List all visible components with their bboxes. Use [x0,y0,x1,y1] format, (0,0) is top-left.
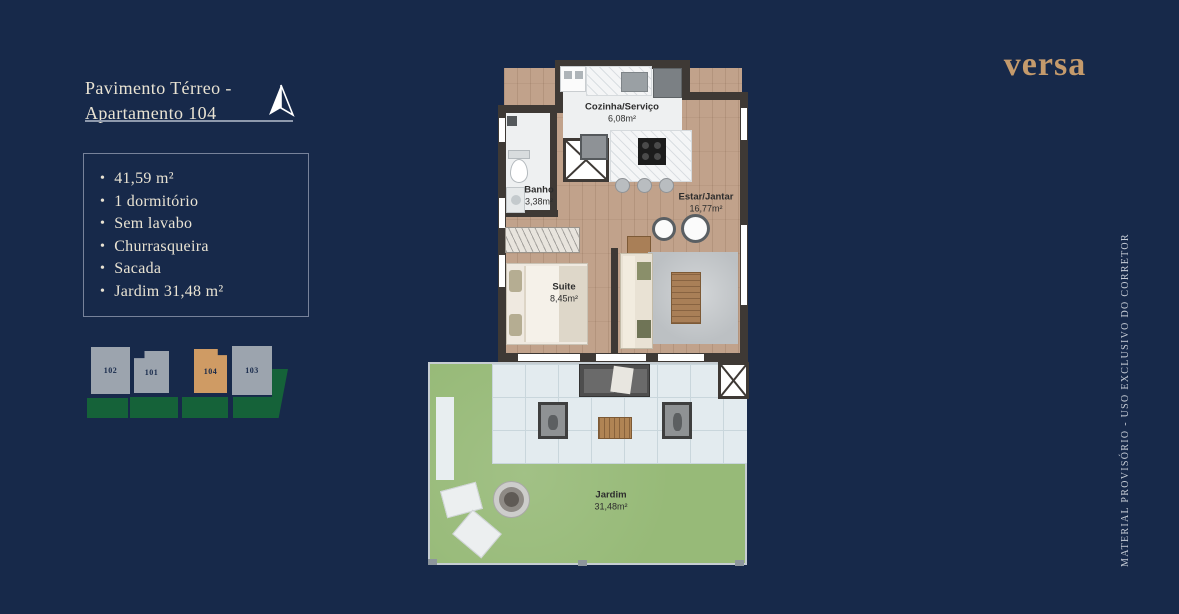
lawn-strip [87,398,128,418]
feature-item: Churrasqueira [100,236,308,259]
wardrobe [505,227,580,253]
features-list: 41,59 m² 1 dormitório Sem lavabo Churras… [100,168,308,303]
feature-item: 41,59 m² [100,168,308,191]
window [658,354,704,361]
page-title: Pavimento Térreo - Apartamento 104 [85,76,232,126]
unit-number: 102 [104,366,118,375]
interior-wall [611,248,618,353]
versa-logo: versa [985,46,1105,84]
window [499,255,505,287]
window [499,118,505,142]
floor-plan: Jardim 31,48m² [400,50,752,570]
sofa [620,253,653,349]
window [741,108,747,140]
page: Pavimento Térreo - Apartamento 104 41,59… [0,0,1179,614]
barbecue-shaft [718,362,749,399]
room-label-suite: Suite 8,45m² [550,281,578,304]
room-label-cozinha: Cozinha/Serviço 6,08m² [585,101,659,124]
kitchen-counter [586,66,652,96]
bathroom-sink [506,187,525,213]
site-unit-103: 103 [232,346,272,395]
window [741,225,747,305]
dining-table [652,217,676,241]
disclaimer-vertical-text: MATERIAL PROVISÓRIO - USO EXCLUSIVO DO C… [1120,287,1136,567]
room-label-estar: Estar/Jantar 16,77m² [679,191,734,214]
outdoor-table [598,417,632,439]
room-label-jardim: Jardim 31,48m² [594,489,627,512]
window [499,198,505,228]
stool [637,178,652,193]
fence-post [578,560,587,566]
feature-item: Sem lavabo [100,213,308,236]
dining-table [681,214,710,243]
washing-machine [580,134,608,160]
coffee-table [671,272,701,324]
shower-fixture [507,116,517,126]
garden-area: Jardim 31,48m² [428,362,747,565]
stool [659,178,674,193]
title-line-1: Pavimento Térreo - [85,76,232,101]
site-unit-104-highlighted: 104 [194,349,227,393]
outdoor-armchair [538,402,568,439]
site-unit-102: 102 [91,347,130,394]
outdoor-sofa [579,364,650,397]
toilet-tank [508,150,530,159]
lawn-strip [130,397,178,418]
title-divider [85,120,293,122]
fence-post [735,560,744,566]
unit-number: 104 [204,367,218,376]
cooktop [638,138,666,165]
wall [682,92,748,100]
feature-item: Sacada [100,258,308,281]
window [518,354,580,361]
lawn-strip [182,397,228,418]
fire-pit [493,481,530,518]
unit-number: 101 [145,368,159,377]
fence-post [428,559,437,565]
north-arrow-icon [267,84,295,122]
site-unit-101: 101 [134,351,169,393]
title-line-2: Apartamento 104 [85,101,232,126]
room-label-banho: Banho 3,38m² [524,184,554,207]
garden-mat [452,510,502,559]
outdoor-armchair [662,402,692,439]
unit-number: 103 [245,366,259,375]
feature-item: 1 dormitório [100,191,308,214]
sliding-door [596,354,646,361]
stool [615,178,630,193]
refrigerator [653,68,682,98]
kitchen-sink [560,66,586,92]
garden-path [436,397,454,480]
feature-item: Jardim 31,48 m² [100,281,308,304]
features-box: 41,59 m² 1 dormitório Sem lavabo Churras… [83,153,309,317]
kitchen-island [610,130,692,182]
toilet [510,159,528,183]
site-plan-diagram: 102 101 104 103 [85,340,305,430]
